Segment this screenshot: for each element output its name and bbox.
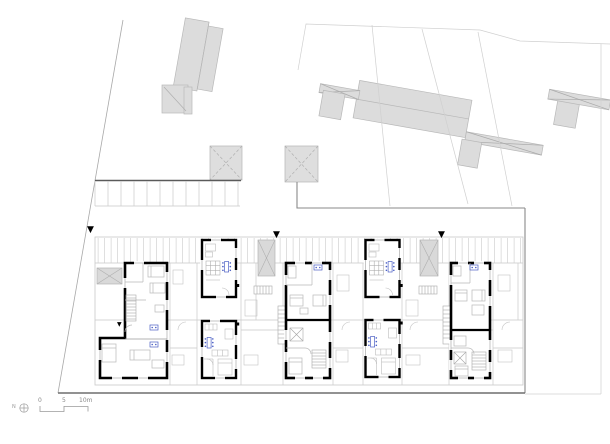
roof-deck-stripes: [97, 238, 523, 263]
context-buildings: [162, 18, 610, 182]
apartment-unit-4-top: [364, 238, 403, 299]
interior-stair: [312, 350, 326, 368]
context-building-north-center: [311, 74, 549, 179]
entry-marker-icon: ▼: [117, 322, 122, 328]
apartment-unit-2-bottom: [200, 319, 239, 380]
site-plan-drawing: [0, 0, 610, 444]
context-building-northwest: [173, 18, 224, 94]
apartment-unit-2-top: [200, 238, 239, 299]
scale-tick-5: 5: [62, 398, 66, 404]
parking-stalls: [95, 181, 240, 206]
scale-tick-10m: 10m: [79, 398, 92, 404]
entry-marker-icon: ▼: [273, 231, 280, 240]
scale-bar: [40, 406, 88, 412]
context-outbuilding-east: [285, 146, 318, 182]
context-outbuilding-west: [210, 146, 242, 180]
apartment-unit-3: [284, 261, 332, 380]
apartment-unit-5: [449, 261, 492, 380]
apartment-unit-4-bottom: [364, 318, 403, 379]
roof-skylight-right: [420, 240, 438, 276]
roof-skylight-left: [258, 240, 275, 276]
canopy-west: [97, 268, 122, 284]
entry-marker-icon: ▼: [438, 231, 445, 240]
entry-marker-icon: ▼: [87, 226, 94, 235]
floor-plan-canvas: ▼ ▼ ▼ ▼ N 0 5 10m: [0, 0, 610, 444]
context-building-northwest-annex: [162, 85, 192, 114]
scale-tick-0: 0: [38, 398, 42, 404]
north-arrow-icon: [20, 404, 28, 412]
interior-stair: [472, 352, 486, 370]
context-building-northeast: [544, 89, 610, 133]
exterior-stair-1: [254, 286, 272, 294]
exterior-stair-2: [419, 286, 437, 294]
north-label: N: [12, 405, 16, 410]
